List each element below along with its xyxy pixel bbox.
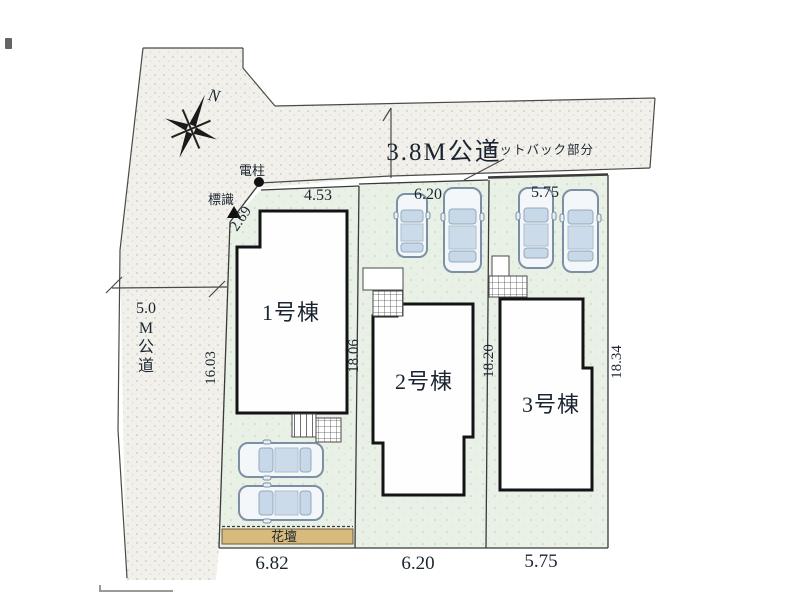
- scan-artifact-topleft: [5, 38, 12, 49]
- car-lot2-right: [441, 188, 484, 272]
- lot1-steps: [292, 414, 316, 437]
- car-lot3-right: [560, 190, 601, 272]
- flower-bed-label: 花壇: [271, 529, 297, 544]
- left-road-char-2: 公: [138, 339, 154, 356]
- dim-lot1-right: 18.06: [346, 339, 362, 373]
- left-road-char-1: M: [139, 320, 153, 337]
- lot1-porch: [316, 418, 341, 442]
- car-lot2-left: [394, 194, 430, 257]
- lot2-step-landing: [363, 268, 403, 290]
- utility-pole-label: 電柱: [239, 163, 265, 178]
- utility-pole-dot: [254, 177, 264, 187]
- building-1-label: 1号棟: [262, 300, 320, 325]
- car-lot1-lower: [239, 483, 323, 523]
- dim-lot1-bottom: 6.82: [255, 553, 288, 574]
- left-road-char-0: 5.0: [136, 300, 156, 317]
- dim-lot2-top: 6.20: [414, 186, 442, 203]
- left-road-char-3: 道: [138, 357, 154, 375]
- dim-lot3-top: 5.75: [531, 184, 559, 201]
- site-plan-page: N 3.8M公道 セットバック部分 5.0 M 公 道 電柱 標識 花壇 1号棟…: [0, 0, 800, 600]
- building-3-label: 3号棟: [522, 392, 580, 417]
- scan-artifact-bottomleft: [100, 585, 173, 591]
- lot3-porch: [489, 276, 527, 297]
- dim-lot3-bottom: 5.75: [524, 551, 557, 572]
- dim-lot2-bottom: 6.20: [401, 553, 434, 574]
- site-plan-svg: N 3.8M公道 セットバック部分 5.0 M 公 道 電柱 標識 花壇 1号棟…: [0, 0, 800, 600]
- lot2-porch: [373, 291, 403, 316]
- building-2-label: 2号棟: [395, 369, 453, 394]
- dim-lot1-left: 16.03: [203, 351, 219, 385]
- setback-label: セットバック部分: [486, 142, 594, 157]
- top-road-label: 3.8M公道: [386, 138, 501, 166]
- dim-lot3-right: 18.34: [609, 345, 625, 379]
- building-2-outline: [373, 304, 473, 495]
- car-lot1-upper: [239, 440, 323, 480]
- lot3-step-landing: [492, 256, 509, 276]
- dim-lot1-top: 4.53: [304, 187, 332, 204]
- dim-lot2-right: 18.20: [481, 344, 497, 378]
- sign-label: 標識: [208, 192, 234, 207]
